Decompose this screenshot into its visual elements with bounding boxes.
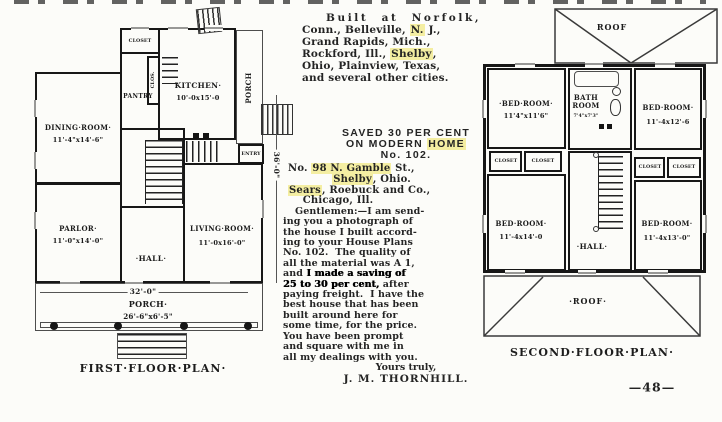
window-mark: [168, 25, 188, 31]
living-room-dim: 11'-0x16'-0": [199, 239, 246, 247]
second-floor-caption: SECOND·FLOOR·PLAN·: [510, 347, 674, 359]
window-mark: [260, 200, 266, 218]
letter-closing: Yours truly,: [283, 363, 529, 373]
height-dimension-line: [276, 95, 277, 283]
window-mark: [655, 61, 675, 67]
small-closet-label: CLOS.: [149, 72, 157, 89]
pantry-label: PANTRY: [123, 93, 153, 101]
rear-staircase: [186, 141, 218, 162]
newel-post: [593, 226, 599, 232]
door-jamb: [599, 124, 604, 129]
kitchen-dim: 10'-0x15'-0: [176, 94, 219, 102]
window-mark: [480, 215, 486, 233]
cropped-text-edge: [14, 0, 706, 4]
dining-room-label: DINING·ROOM·: [45, 124, 111, 132]
front-porch-label: PORCH·: [129, 300, 167, 308]
parlor-dim: 11'-0"x14'-0": [53, 237, 103, 245]
porch-post: [180, 322, 188, 330]
width-dimension: 32'-0": [128, 288, 159, 296]
bedroom-bl-dim: 11'-4x14'-0: [499, 233, 542, 241]
parlor-label: PARLOR·: [59, 225, 97, 233]
window-mark: [585, 61, 603, 67]
closet-label: CLOSET: [129, 37, 152, 45]
roof-top-outline: [554, 8, 718, 64]
bathtub: [574, 71, 619, 87]
porch-post: [50, 322, 58, 330]
window-mark: [703, 100, 709, 118]
window-mark: [32, 212, 38, 229]
hall-outline: [120, 206, 185, 283]
window-mark: [32, 152, 38, 169]
height-dimension: 36'-0": [272, 150, 280, 181]
staircase: [598, 156, 623, 230]
kitchen-label: KITCHEN·: [175, 82, 222, 90]
first-floor-caption: FIRST·FLOOR·PLAN·: [80, 363, 227, 375]
bedroom-tr-dim: 11'-4x12'-6: [646, 118, 689, 126]
door-jamb: [193, 133, 199, 139]
window-mark: [703, 215, 709, 233]
front-steps: [117, 333, 187, 359]
hall-label: ·HALL·: [136, 255, 167, 263]
roof-bottom-label: ·ROOF·: [569, 297, 607, 305]
bedroom-bl-label: BED·ROOM·: [495, 220, 546, 228]
bathroom-dim: 7'4"x7'3": [573, 112, 598, 120]
roof-top-label: ROOF: [597, 23, 627, 31]
side-porch-label: PORCH: [245, 72, 253, 103]
window-mark: [125, 280, 143, 286]
window-mark: [210, 280, 230, 286]
porch-post: [244, 322, 252, 330]
window-mark: [60, 280, 80, 286]
living-room-label: LIVING·ROOM·: [190, 225, 254, 233]
letter-signature: J. M. THORNHILL.: [283, 373, 529, 385]
door-jamb: [607, 124, 612, 129]
bedroom-br-dim: 11'-4x13'-0": [644, 234, 691, 242]
window-mark: [515, 61, 535, 67]
entry-label: ENTRY: [241, 150, 260, 158]
catalog-page: 32'-0" 36'-0" CLOSET PANTRY CLOS. KITCHE…: [0, 0, 722, 422]
closet-label: CLOSET: [495, 157, 518, 165]
sink: [610, 99, 621, 116]
bedroom-tl-label: ·BED·ROOM·: [499, 100, 553, 108]
roof-bottom-outline: [483, 275, 701, 337]
closet-label: CLOSET: [673, 163, 696, 171]
front-porch-dim: 26'-6"x6'-5": [123, 313, 173, 321]
bedroom-tl-dim: 11'4"x11'6": [504, 112, 549, 120]
porch-railing: [40, 322, 258, 328]
porch-post: [114, 322, 122, 330]
toilet: [612, 87, 621, 96]
door-jamb: [203, 133, 209, 139]
window-mark: [205, 25, 223, 31]
closet-label: CLOSET: [639, 163, 662, 171]
window-mark: [32, 100, 38, 117]
dining-room-dim: 11'-4"x14'-6": [53, 136, 103, 144]
main-staircase: [145, 140, 183, 204]
page-number: —48—: [629, 381, 675, 394]
closet-label: CLOSET: [532, 157, 555, 165]
newel-post: [593, 152, 599, 158]
hall-label: ·HALL·: [577, 243, 608, 251]
window-mark: [480, 100, 486, 118]
window-mark: [131, 25, 149, 31]
bedroom-tl-outline: [487, 68, 566, 149]
bathroom-label: BATH ROOM: [572, 94, 599, 110]
bedroom-tr-label: BED·ROOM·: [642, 104, 693, 112]
bedroom-br-label: BED·ROOM·: [641, 220, 692, 228]
